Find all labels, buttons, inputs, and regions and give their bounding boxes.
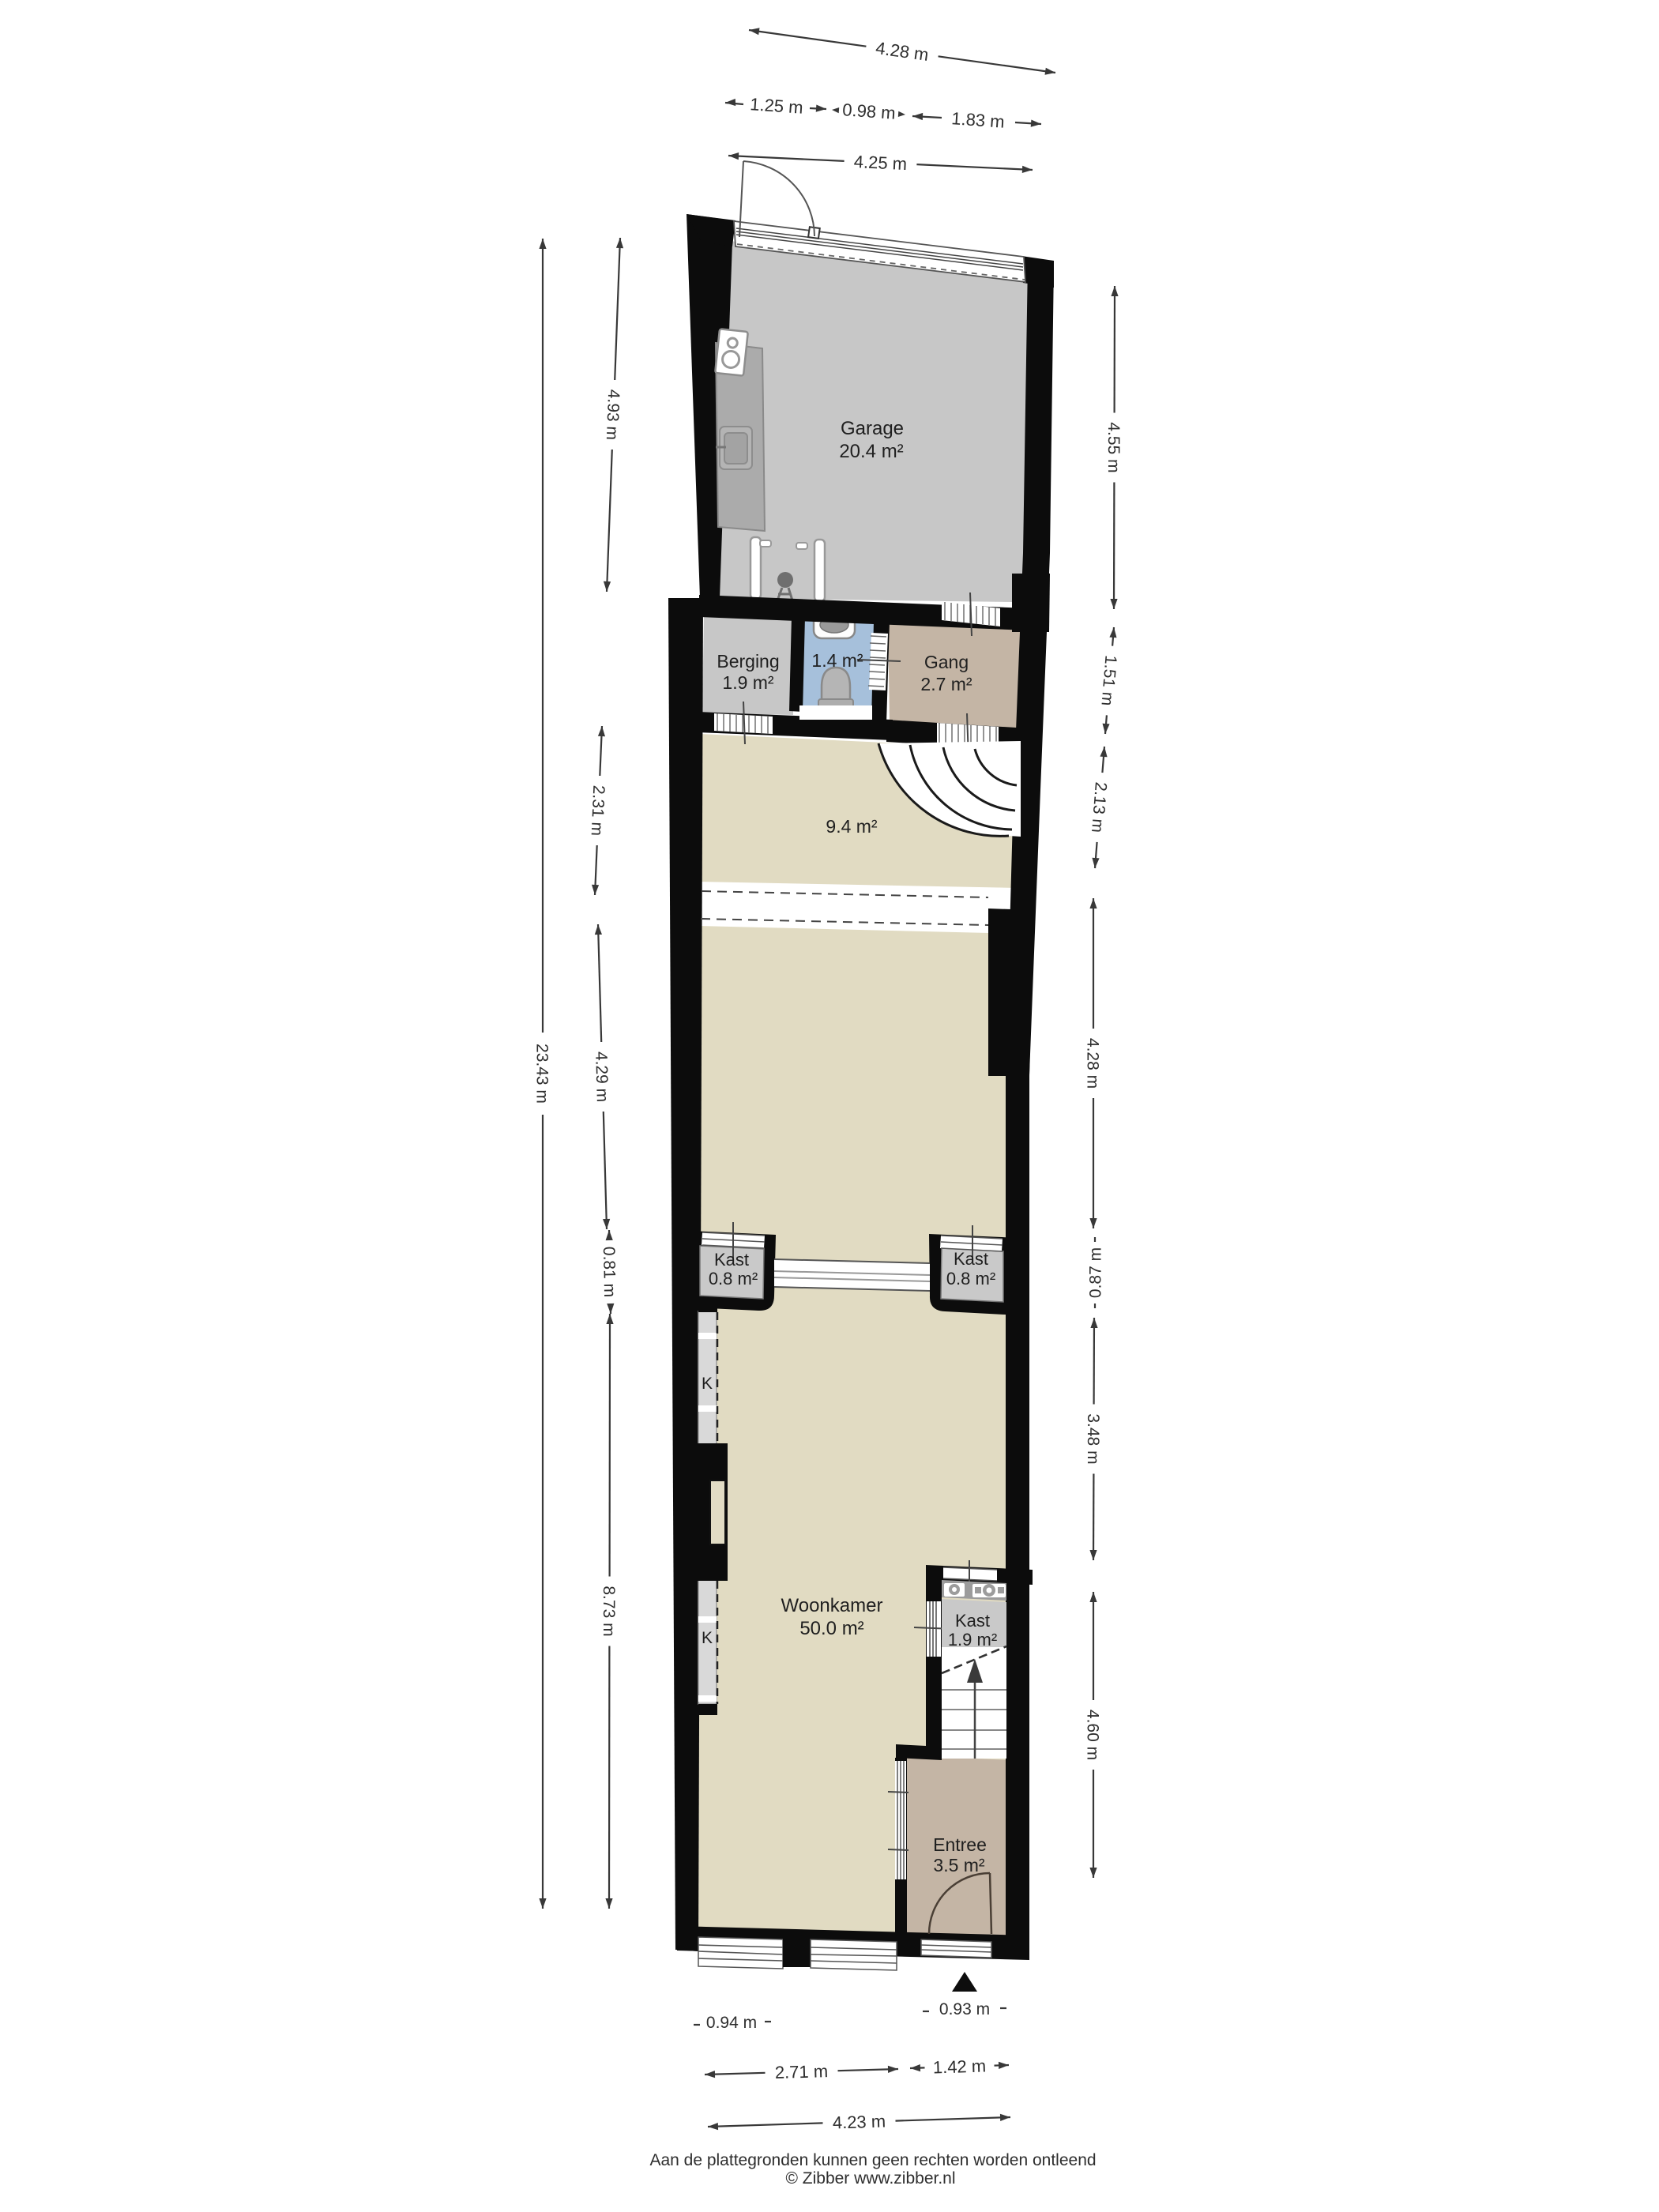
svg-text:1.25 m: 1.25 m xyxy=(750,94,804,118)
svg-text:0.93 m: 0.93 m xyxy=(939,2000,990,2018)
svg-text:2.71 m: 2.71 m xyxy=(775,2061,829,2082)
svg-text:4.93 m: 4.93 m xyxy=(603,389,623,440)
svg-text:Kast: Kast xyxy=(955,1611,990,1631)
svg-text:3.48 m: 3.48 m xyxy=(1084,1413,1102,1464)
svg-text:4.29 m: 4.29 m xyxy=(592,1051,611,1103)
svg-text:Kast: Kast xyxy=(954,1249,988,1269)
svg-text:23.43 m: 23.43 m xyxy=(533,1044,551,1104)
svg-text:0.87 m: 0.87 m xyxy=(1087,1247,1105,1298)
svg-text:4.28 m: 4.28 m xyxy=(1084,1038,1102,1089)
svg-text:9.4 m²: 9.4 m² xyxy=(826,816,878,837)
svg-text:4.60 m: 4.60 m xyxy=(1084,1710,1102,1760)
svg-text:Woonkamer: Woonkamer xyxy=(781,1595,883,1616)
svg-text:Aan de plattegronden kunnen ge: Aan de plattegronden kunnen geen rechten… xyxy=(649,2151,1096,2169)
svg-text:2.31 m: 2.31 m xyxy=(588,784,608,836)
svg-text:0.98 m: 0.98 m xyxy=(842,100,897,123)
svg-text:Gang: Gang xyxy=(924,652,969,672)
svg-text:1.9 m²: 1.9 m² xyxy=(948,1630,997,1650)
svg-text:Kast: Kast xyxy=(714,1250,749,1270)
svg-text:1.9 m²: 1.9 m² xyxy=(722,672,774,693)
svg-text:1.83 m: 1.83 m xyxy=(951,108,1006,132)
svg-text:© Zibber www.zibber.nl: © Zibber www.zibber.nl xyxy=(785,2169,955,2188)
svg-text:1.4 m²: 1.4 m² xyxy=(811,650,863,671)
svg-text:4.23 m: 4.23 m xyxy=(832,2111,886,2132)
svg-text:8.73 m: 8.73 m xyxy=(600,1586,618,1636)
svg-text:Berging: Berging xyxy=(717,651,779,671)
svg-text:0.8 m²: 0.8 m² xyxy=(709,1269,758,1288)
svg-text:0.81 m: 0.81 m xyxy=(600,1247,619,1298)
svg-text:2.7 m²: 2.7 m² xyxy=(920,674,972,694)
svg-text:Entree: Entree xyxy=(933,1834,987,1855)
svg-text:3.5 m²: 3.5 m² xyxy=(933,1855,985,1875)
svg-text:4.25 m: 4.25 m xyxy=(853,152,907,174)
svg-text:50.0 m²: 50.0 m² xyxy=(799,1618,863,1639)
svg-text:0.8 m²: 0.8 m² xyxy=(946,1269,995,1288)
svg-text:K: K xyxy=(702,1629,713,1647)
svg-text:1.42 m: 1.42 m xyxy=(932,2056,986,2077)
svg-text:4.55 m: 4.55 m xyxy=(1104,422,1123,472)
svg-text:Garage: Garage xyxy=(841,418,904,439)
svg-text:0.94 m: 0.94 m xyxy=(706,2014,757,2032)
svg-text:20.4 m²: 20.4 m² xyxy=(839,441,903,462)
svg-text:K: K xyxy=(702,1375,713,1393)
